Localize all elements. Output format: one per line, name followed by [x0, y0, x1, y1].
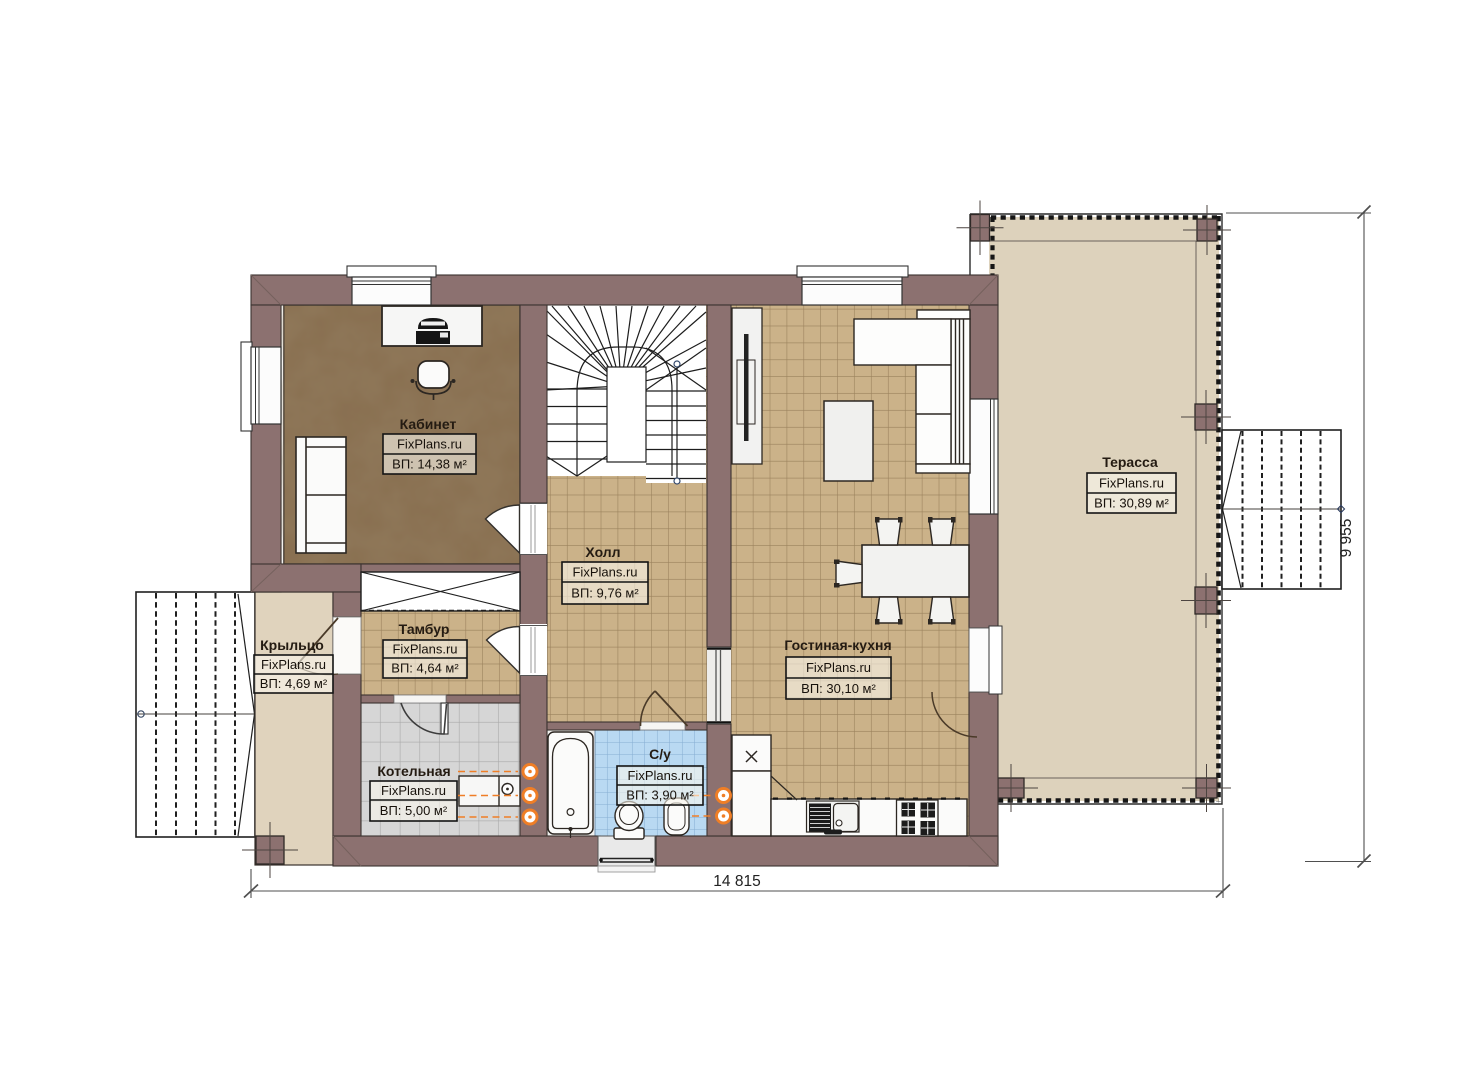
svg-text:FixPlans.ru: FixPlans.ru: [806, 660, 871, 675]
svg-text:FixPlans.ru: FixPlans.ru: [627, 768, 692, 783]
svg-text:FixPlans.ru: FixPlans.ru: [381, 783, 446, 798]
svg-text:FixPlans.ru: FixPlans.ru: [572, 565, 637, 580]
svg-text:ВП: 3,90 м²: ВП: 3,90 м²: [626, 788, 694, 803]
svg-text:FixPlans.ru: FixPlans.ru: [261, 657, 326, 672]
svg-text:14 815: 14 815: [713, 873, 760, 890]
svg-text:ВП: 30,10 м²: ВП: 30,10 м²: [801, 681, 876, 696]
svg-text:FixPlans.ru: FixPlans.ru: [392, 642, 457, 657]
svg-text:ВП: 14,38 м²: ВП: 14,38 м²: [392, 457, 467, 472]
svg-text:Тамбур: Тамбур: [399, 621, 450, 637]
svg-text:9 955: 9 955: [1338, 519, 1355, 558]
svg-text:Кабинет: Кабинет: [400, 416, 457, 432]
svg-text:Крыльцо: Крыльцо: [260, 637, 324, 653]
svg-text:ВП: 30,89 м²: ВП: 30,89 м²: [1094, 496, 1169, 511]
svg-text:Котельная: Котельная: [377, 763, 450, 779]
svg-text:Терасса: Терасса: [1102, 454, 1158, 470]
svg-text:FixPlans.ru: FixPlans.ru: [397, 437, 462, 452]
svg-text:Холл: Холл: [585, 544, 620, 560]
svg-text:С/у: С/у: [649, 746, 671, 762]
svg-text:FixPlans.ru: FixPlans.ru: [1099, 476, 1164, 491]
svg-text:ВП: 5,00 м²: ВП: 5,00 м²: [380, 803, 448, 818]
svg-text:ВП: 9,76 м²: ВП: 9,76 м²: [571, 586, 639, 601]
svg-text:ВП: 4,69 м²: ВП: 4,69 м²: [260, 676, 328, 691]
svg-text:Гостиная-кухня: Гостиная-кухня: [784, 637, 891, 653]
svg-text:ВП: 4,64 м²: ВП: 4,64 м²: [391, 661, 459, 676]
